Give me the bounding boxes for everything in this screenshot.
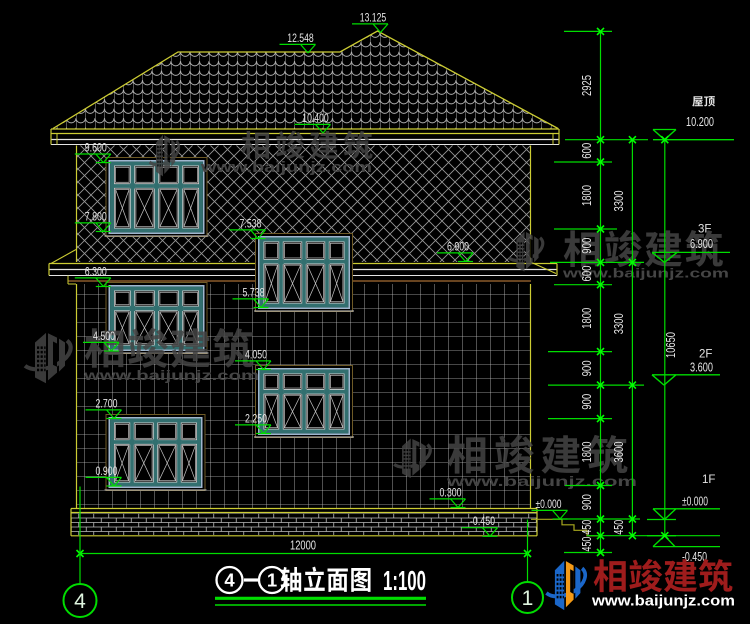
svg-text:-0.450: -0.450 (470, 514, 495, 528)
svg-text:7.538: 7.538 (240, 216, 262, 230)
svg-text:900: 900 (580, 360, 594, 376)
svg-text:1:100: 1:100 (383, 565, 426, 596)
svg-text:4: 4 (224, 570, 235, 591)
svg-text:900: 900 (580, 238, 594, 254)
svg-text:10.200: 10.200 (686, 115, 714, 129)
svg-text:2.250: 2.250 (245, 411, 267, 425)
svg-text:600: 600 (580, 143, 594, 159)
svg-text:1F: 1F (702, 474, 715, 486)
svg-text:www.baijunjz.com: www.baijunjz.com (200, 159, 372, 176)
svg-text:1: 1 (522, 587, 534, 610)
svg-text:900: 900 (580, 494, 594, 510)
svg-text:450: 450 (612, 520, 626, 535)
svg-text:www.baijunjz.com: www.baijunjz.com (82, 368, 259, 383)
svg-text:12000: 12000 (290, 539, 316, 553)
svg-text:1: 1 (267, 570, 277, 591)
svg-text:4.050: 4.050 (245, 347, 267, 361)
svg-text:0.300: 0.300 (440, 485, 462, 499)
svg-text:4.500: 4.500 (93, 329, 115, 343)
svg-text:6.900: 6.900 (690, 237, 713, 251)
svg-text:9.600: 9.600 (85, 140, 107, 154)
svg-text:6.300: 6.300 (85, 264, 107, 278)
svg-text:450: 450 (580, 520, 594, 535)
svg-text:3600: 3600 (612, 441, 626, 462)
svg-text:600: 600 (580, 265, 594, 281)
svg-text:12.548: 12.548 (287, 31, 314, 45)
svg-text:2F: 2F (699, 349, 712, 361)
svg-text:1800: 1800 (580, 441, 594, 462)
svg-text:3300: 3300 (612, 313, 626, 334)
svg-text:±0.000: ±0.000 (682, 495, 708, 509)
svg-text:2.700: 2.700 (96, 396, 118, 410)
svg-text:7.800: 7.800 (85, 209, 107, 223)
svg-text:2925: 2925 (580, 75, 594, 96)
svg-text:900: 900 (580, 394, 594, 410)
svg-text:3300: 3300 (612, 190, 626, 211)
svg-text:6.900: 6.900 (447, 239, 469, 253)
svg-text:1800: 1800 (580, 308, 594, 329)
svg-text:3F: 3F (698, 224, 711, 236)
svg-text:www.baijunjz.com: www.baijunjz.com (591, 594, 735, 610)
svg-text:3.600: 3.600 (690, 361, 713, 375)
svg-text:450: 450 (580, 537, 594, 552)
svg-text:0.900: 0.900 (96, 464, 118, 478)
svg-text:www.baijunjz.com: www.baijunjz.com (445, 473, 637, 489)
svg-text:10.400: 10.400 (302, 111, 329, 125)
svg-text:4: 4 (74, 590, 86, 613)
svg-text:1800: 1800 (580, 185, 594, 206)
svg-text:13.125: 13.125 (360, 10, 387, 24)
svg-text:±0.000: ±0.000 (536, 497, 562, 511)
svg-text:5.738: 5.738 (243, 285, 265, 299)
svg-text:10650: 10650 (664, 332, 678, 358)
